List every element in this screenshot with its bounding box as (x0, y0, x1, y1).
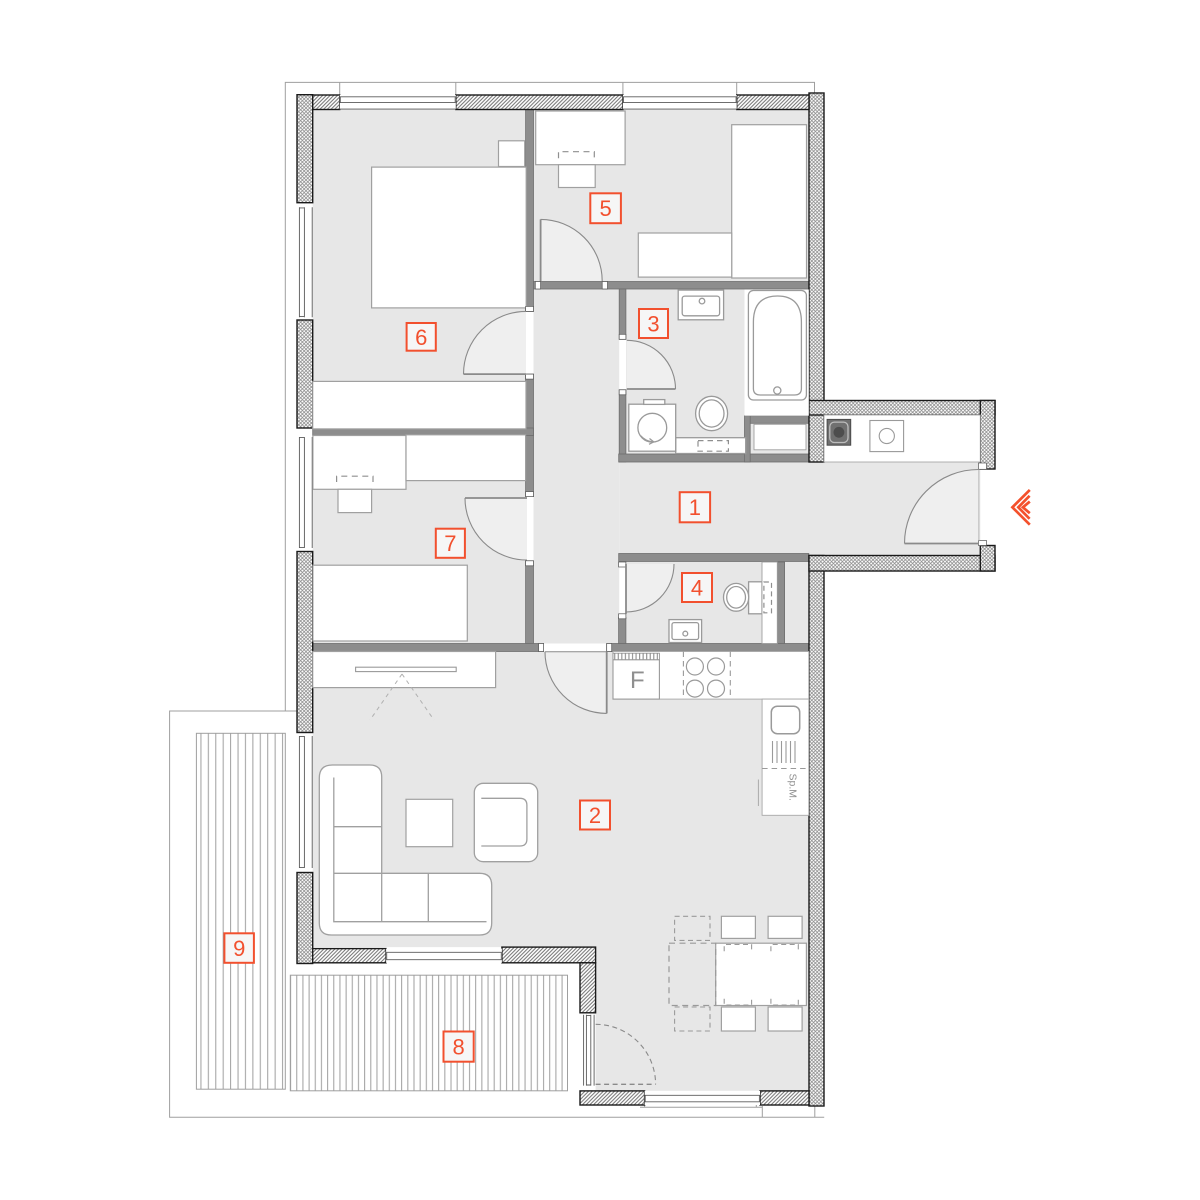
svg-text:7: 7 (444, 531, 456, 556)
svg-text:F: F (630, 667, 645, 694)
svg-text:4: 4 (691, 576, 703, 601)
svg-text:2: 2 (589, 803, 601, 828)
svg-text:5: 5 (599, 196, 611, 221)
svg-text:Sp.M.: Sp.M. (787, 774, 799, 801)
svg-text:9: 9 (233, 936, 245, 961)
svg-text:3: 3 (647, 312, 659, 337)
svg-text:1: 1 (689, 495, 701, 520)
svg-text:6: 6 (415, 325, 427, 350)
svg-text:8: 8 (452, 1035, 464, 1060)
